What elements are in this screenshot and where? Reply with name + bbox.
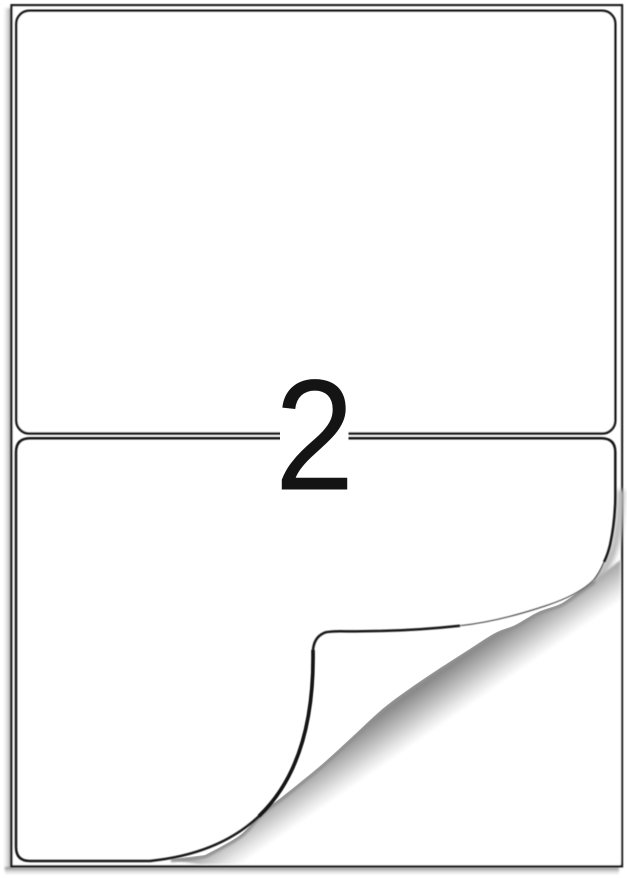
- svg-text:2: 2: [275, 346, 355, 523]
